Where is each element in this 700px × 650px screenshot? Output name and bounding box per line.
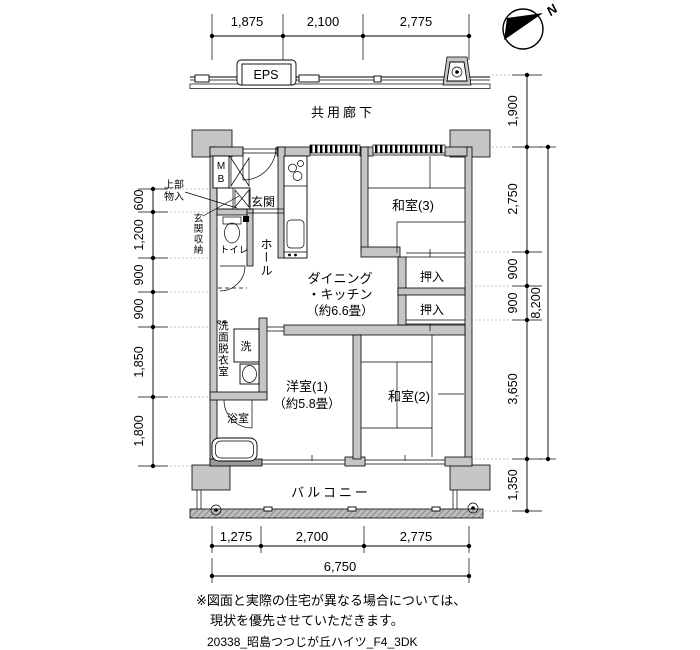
dim-right-total: 8,200 xyxy=(529,287,543,318)
floor-plan-drawing: EPS 共用廊下 N 1,875 2,100 2,775 xyxy=(0,0,700,650)
dim-left-5: 1,850 xyxy=(132,346,146,377)
entrance-door xyxy=(243,147,276,180)
upper-storage-label-2: 物入 xyxy=(164,190,184,203)
balcony: バルコニー xyxy=(190,485,483,518)
dim-right-2: 2,750 xyxy=(506,183,520,214)
floor-plan-page: EPS 共用廊下 N 1,875 2,100 2,775 xyxy=(0,0,700,650)
closet-lower-label: 押入 xyxy=(420,303,444,317)
balcony-door-japanese2 xyxy=(365,455,445,464)
dim-right-6: 1,350 xyxy=(506,469,520,500)
balcony-door-western1 xyxy=(262,455,345,464)
window-dk-top xyxy=(310,145,360,153)
north-arrow-compass: N xyxy=(503,1,561,49)
dim-left-4: 900 xyxy=(132,299,146,320)
balcony-label: バルコニー xyxy=(291,485,371,500)
dim-left-1: 600 xyxy=(132,190,146,211)
dim-right-4: 900 xyxy=(506,293,520,314)
dk-label-2: ・キッチン xyxy=(307,287,372,302)
dim-right-1: 1,900 xyxy=(506,95,520,126)
entrance-storage-label: 玄関収納 xyxy=(192,212,204,255)
dim-right-5: 3,650 xyxy=(506,373,520,404)
dim-bottom-2: 2,700 xyxy=(296,529,329,544)
japanese2-label: 和室(2) xyxy=(388,389,430,404)
dk-label-1: ダイニング xyxy=(307,271,372,286)
compass-north-label: N xyxy=(543,1,560,19)
dim-top-2: 2,100 xyxy=(307,14,340,29)
closet-upper-label: 押入 xyxy=(420,270,444,284)
toilet-label: トイレ xyxy=(220,245,249,256)
toilet-door xyxy=(220,266,245,291)
dim-left-2: 1,200 xyxy=(132,219,146,250)
toilet-bowl-icon xyxy=(225,223,240,243)
dim-left-6: 1,800 xyxy=(132,415,146,446)
meter-box: M B xyxy=(213,156,229,188)
western1-label-2: （約5.8畳） xyxy=(273,396,340,411)
hall-label: ホール xyxy=(259,238,273,277)
corridor-structure: EPS 共用廊下 xyxy=(190,57,490,120)
mb-label-m: M xyxy=(217,161,225,172)
dim-top-1: 1,875 xyxy=(231,14,264,29)
folding-door-mb xyxy=(231,158,249,186)
note-line-1: ※図面と実際の住宅が異なる場合については、 xyxy=(196,593,466,608)
corridor-label: 共用廊下 xyxy=(311,105,375,120)
dim-left-3: 900 xyxy=(132,265,146,286)
dim-top-3: 2,775 xyxy=(400,14,433,29)
dimension-chain-top: 1,875 2,100 2,775 xyxy=(210,14,471,60)
eps-label: EPS xyxy=(253,68,278,82)
upper-storage-label-1: 上部 xyxy=(164,178,184,191)
dim-bottom-1: 1,275 xyxy=(220,529,253,544)
window-japanese3-top xyxy=(373,145,445,153)
bathtub-icon xyxy=(212,438,257,461)
dim-right-3: 900 xyxy=(506,259,520,280)
kitchen-counter xyxy=(284,156,307,258)
notes: ※図面と実際の住宅が異なる場合については、 現状を優先させていただきます。 20… xyxy=(196,593,466,649)
dk-label-3: （約6.6畳） xyxy=(306,303,373,318)
western1-label-1: 洋室(1) xyxy=(286,379,328,394)
washing-machine-icon: 洗 xyxy=(234,329,259,362)
entrance-label: 玄関 xyxy=(251,194,275,209)
note-line-2: 現状を優先させていただきます。 xyxy=(210,613,404,628)
dimension-chain-bottom: 1,275 2,700 2,775 6,750 xyxy=(210,526,471,583)
bath-label: 浴室 xyxy=(227,411,249,425)
mb-label-b: B xyxy=(218,174,225,185)
dim-bottom-total: 6,750 xyxy=(324,559,357,574)
washroom-label: 洗面脱衣室 xyxy=(217,320,229,378)
standpipe-fixture xyxy=(443,57,471,85)
dim-bottom-3: 2,775 xyxy=(400,529,433,544)
japanese3-label: 和室(3) xyxy=(392,198,434,213)
sink-icon xyxy=(240,364,259,384)
washer-label: 洗 xyxy=(241,340,252,353)
file-label: 20338_昭島つつじが丘ハイツ_F4_3DK xyxy=(207,634,418,649)
